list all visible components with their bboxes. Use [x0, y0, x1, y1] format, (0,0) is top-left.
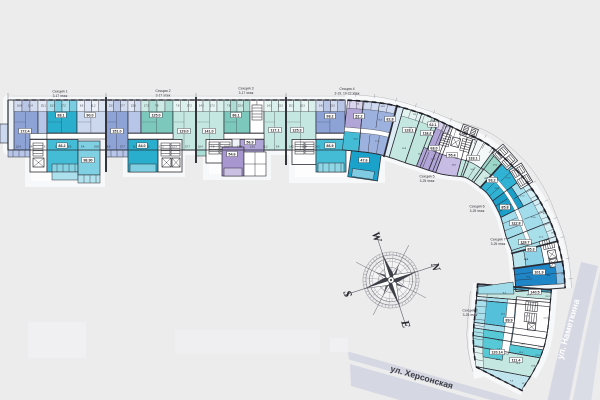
svg-text:23.3: 23.3 — [278, 105, 283, 108]
svg-text:17.2: 17.2 — [210, 105, 215, 108]
svg-text:86.2: 86.2 — [58, 144, 65, 148]
svg-text:90.0: 90.0 — [86, 113, 93, 117]
svg-text:Секция 5: Секция 5 — [419, 175, 434, 179]
svg-text:129.0: 129.0 — [179, 129, 188, 133]
svg-text:37.7: 37.7 — [120, 105, 125, 108]
svg-text:11.2: 11.2 — [91, 105, 96, 108]
svg-text:85.3: 85.3 — [527, 247, 534, 251]
svg-text:98.2: 98.2 — [326, 114, 333, 118]
svg-text:68.0: 68.0 — [430, 146, 437, 150]
svg-text:62.1: 62.1 — [429, 123, 436, 127]
svg-text:101.9: 101.9 — [534, 270, 543, 274]
svg-text:117.1: 117.1 — [270, 128, 279, 132]
svg-text:82.8: 82.8 — [386, 117, 393, 121]
svg-text:89.9: 89.9 — [505, 318, 512, 322]
svg-text:93.2: 93.2 — [488, 178, 495, 182]
svg-text:47.6: 47.6 — [360, 158, 367, 162]
svg-text:16.8: 16.8 — [224, 146, 229, 149]
svg-text:37.7: 37.7 — [120, 146, 125, 149]
svg-text:14.2: 14.2 — [267, 105, 272, 108]
svg-text:23.3: 23.3 — [172, 146, 177, 149]
svg-text:133.1: 133.1 — [468, 156, 477, 160]
svg-text:12.4: 12.4 — [16, 146, 21, 149]
svg-text:3-19, 19-22 этаж: 3-19, 19-22 этаж — [335, 91, 361, 95]
svg-text:17.2: 17.2 — [159, 146, 164, 149]
svg-text:17.2: 17.2 — [144, 105, 149, 108]
svg-text:18.4: 18.4 — [198, 146, 203, 149]
svg-text:23.3: 23.3 — [300, 105, 305, 108]
svg-text:23.3: 23.3 — [50, 105, 55, 108]
svg-text:Секция 7: Секция 7 — [490, 238, 505, 242]
svg-text:Секция 3: Секция 3 — [238, 87, 253, 91]
svg-text:25.1: 25.1 — [289, 105, 294, 108]
svg-text:14.2: 14.2 — [289, 146, 294, 149]
svg-text:3-17 этаж: 3-17 этаж — [239, 91, 254, 95]
svg-text:Секция 4: Секция 4 — [339, 87, 354, 91]
svg-text:25.1: 25.1 — [41, 105, 46, 108]
svg-text:98.90: 98.90 — [83, 158, 92, 162]
svg-text:55.4: 55.4 — [448, 153, 456, 157]
svg-text:84.0: 84.0 — [138, 144, 145, 148]
svg-text:3-17 этаж: 3-17 этаж — [156, 93, 171, 97]
svg-text:12.4: 12.4 — [28, 105, 33, 108]
svg-text:14.2: 14.2 — [315, 146, 320, 149]
svg-text:3-25 этаж: 3-25 этаж — [420, 179, 435, 183]
svg-text:11.2: 11.2 — [263, 146, 268, 149]
svg-text:19.8: 19.8 — [94, 146, 99, 149]
svg-text:56.9: 56.9 — [246, 140, 253, 144]
svg-text:54.6: 54.6 — [228, 152, 235, 156]
svg-text:14.2: 14.2 — [319, 105, 324, 108]
svg-text:Секция 8: Секция 8 — [462, 309, 477, 313]
svg-text:141.0: 141.0 — [204, 129, 213, 133]
svg-text:23.3: 23.3 — [109, 105, 114, 108]
svg-text:86.1: 86.1 — [232, 113, 239, 117]
svg-text:37.7: 37.7 — [185, 146, 190, 149]
svg-text:151.0: 151.0 — [112, 129, 121, 133]
svg-text:Секция 1: Секция 1 — [52, 90, 67, 94]
svg-text:13.6: 13.6 — [237, 146, 242, 149]
svg-text:Секция 2: Секция 2 — [155, 89, 170, 93]
svg-text:23.3: 23.3 — [238, 105, 243, 108]
svg-text:125.0: 125.0 — [151, 113, 160, 117]
svg-text:140.5: 140.5 — [530, 290, 539, 294]
svg-text:23.3: 23.3 — [131, 105, 136, 108]
svg-text:172.4: 172.4 — [20, 129, 30, 133]
svg-text:86.9: 86.9 — [326, 144, 333, 148]
svg-text:88.1: 88.1 — [57, 113, 64, 117]
svg-text:3-25 этаж: 3-25 этаж — [470, 209, 485, 213]
svg-text:17.2: 17.2 — [187, 105, 192, 108]
svg-text:14.2: 14.2 — [199, 105, 204, 108]
svg-text:23.3: 23.3 — [330, 105, 335, 108]
svg-text:3-25 этаж: 3-25 этаж — [463, 313, 478, 317]
svg-text:19.8: 19.8 — [302, 146, 307, 149]
svg-text:3-17 этаж: 3-17 этаж — [53, 94, 68, 98]
svg-text:125.3: 125.3 — [292, 128, 301, 132]
svg-text:3-25 этаж: 3-25 этаж — [491, 242, 506, 246]
svg-text:17.2: 17.2 — [61, 105, 66, 108]
svg-text:111.4: 111.4 — [512, 358, 522, 362]
svg-text:120.14: 120.14 — [491, 350, 503, 354]
svg-text:13.6: 13.6 — [250, 146, 255, 149]
svg-text:16.8: 16.8 — [17, 105, 22, 108]
svg-text:Секция 6: Секция 6 — [469, 205, 484, 209]
